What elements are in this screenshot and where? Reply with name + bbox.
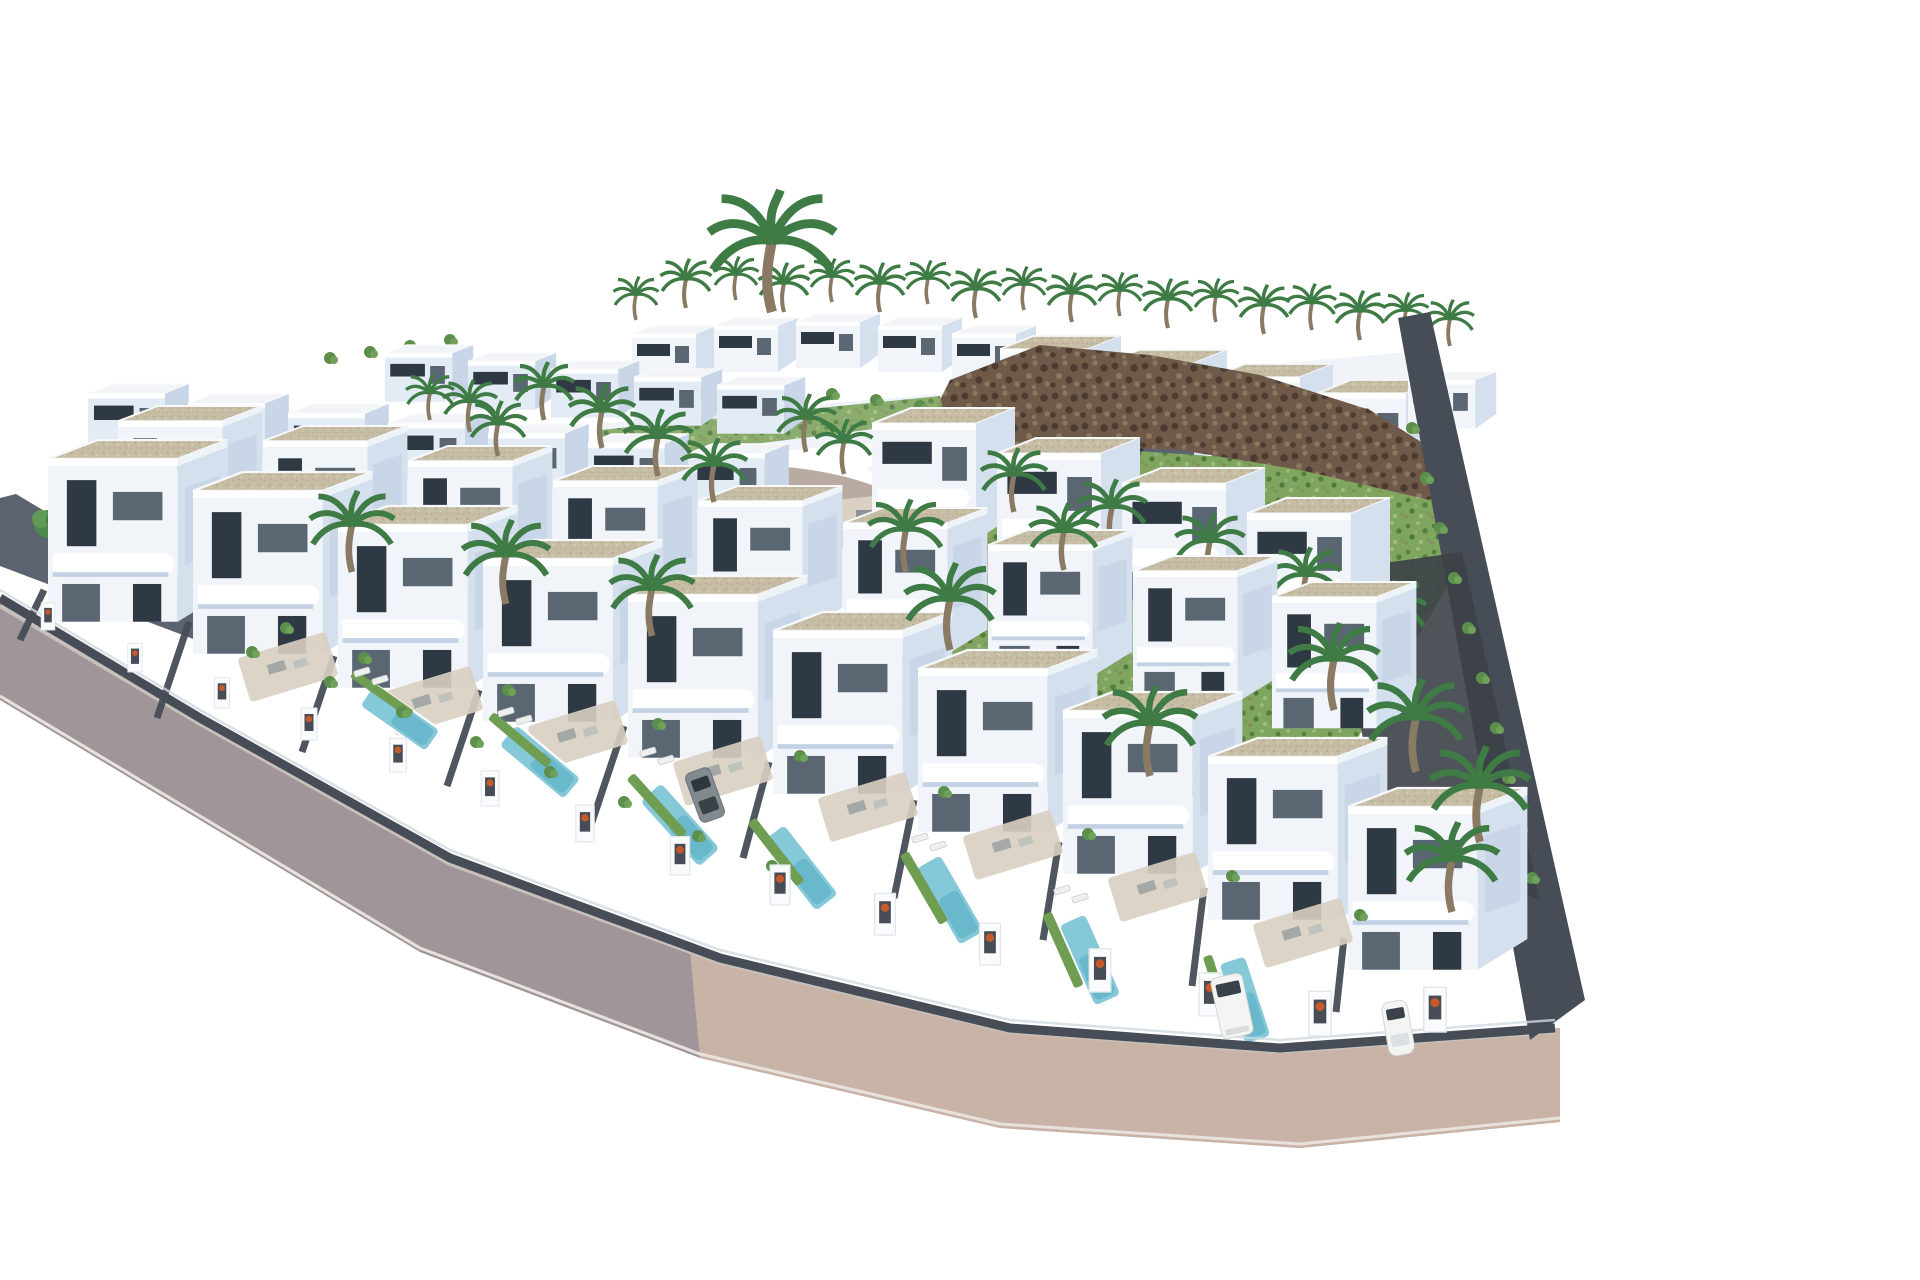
villa — [714, 318, 798, 372]
villa — [878, 318, 962, 372]
palm-tree — [1194, 279, 1239, 323]
gate-pillar — [128, 643, 142, 672]
villa — [1133, 556, 1277, 702]
tall-palm-tree — [709, 190, 835, 312]
bush — [324, 352, 338, 364]
palm-tree — [906, 261, 951, 305]
gate-pillar — [390, 738, 407, 772]
villa — [796, 314, 880, 368]
sun-lounger — [1053, 885, 1070, 895]
sun-lounger — [929, 841, 946, 851]
sun-lounger — [1071, 893, 1088, 903]
villa — [717, 377, 805, 434]
gate-pillar — [1424, 987, 1446, 1032]
palm-tree — [1047, 273, 1098, 322]
palm-tree — [1002, 267, 1047, 311]
bush — [324, 676, 338, 688]
gate-pillar — [481, 771, 499, 806]
palm-tree — [1335, 291, 1386, 340]
palm-tree — [855, 263, 906, 312]
palm-tree — [661, 259, 712, 308]
sun-lounger — [911, 833, 928, 843]
bush — [618, 796, 632, 808]
gate-pillar — [980, 923, 1001, 965]
bush — [444, 334, 458, 346]
site-render-canvas — [0, 0, 1920, 1280]
gate-pillar — [1309, 991, 1331, 1036]
gate-pillar — [670, 837, 689, 875]
gate-pillar — [41, 603, 55, 630]
villa — [1348, 788, 1527, 970]
palm-tree — [1239, 285, 1290, 334]
palm-tree — [1143, 279, 1194, 328]
gate-pillar — [214, 678, 229, 708]
architectural-render: Aerial 3D architectural rendering of a h… — [0, 0, 1920, 1280]
palm-tree — [1098, 273, 1143, 317]
bush — [870, 394, 884, 406]
gate-pillar — [875, 893, 896, 935]
palm-tree — [1288, 284, 1336, 330]
palm-tree — [614, 277, 659, 321]
bush — [364, 346, 378, 358]
gate-pillar — [301, 708, 317, 740]
gate-pillar — [1089, 949, 1111, 992]
gate-pillar — [576, 805, 594, 842]
gate-pillar — [770, 865, 790, 905]
palm-tree — [951, 269, 1002, 318]
bush — [470, 736, 484, 748]
